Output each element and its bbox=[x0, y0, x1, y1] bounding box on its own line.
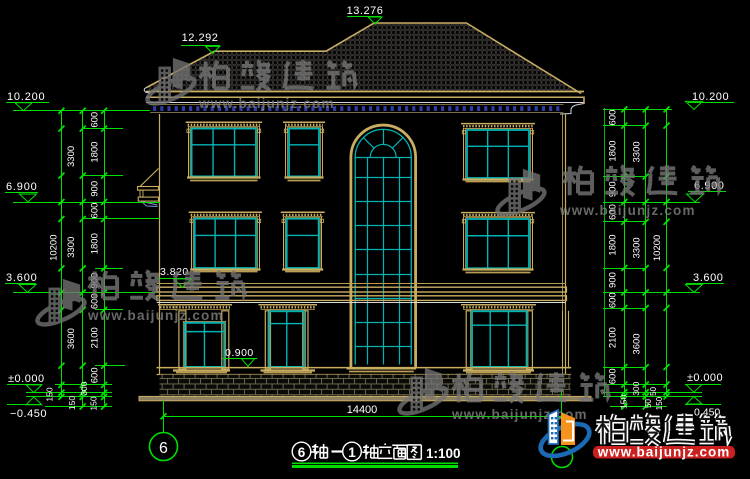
svg-text:150: 150 bbox=[618, 395, 628, 409]
svg-text:12.292: 12.292 bbox=[182, 32, 219, 44]
svg-text:600: 600 bbox=[608, 368, 619, 384]
svg-text:3300: 3300 bbox=[66, 237, 77, 258]
svg-text:600: 600 bbox=[608, 292, 619, 308]
svg-text:150: 150 bbox=[67, 396, 77, 410]
svg-text:600: 600 bbox=[90, 112, 101, 128]
svg-text:2100: 2100 bbox=[608, 327, 619, 348]
svg-text:3.600: 3.600 bbox=[693, 272, 724, 284]
svg-text:600: 600 bbox=[608, 110, 619, 126]
svg-text:www.baijunjz.com: www.baijunjz.com bbox=[87, 308, 224, 323]
svg-text:6: 6 bbox=[298, 445, 306, 460]
svg-text:150: 150 bbox=[89, 396, 99, 410]
svg-text:1: 1 bbox=[348, 445, 356, 460]
svg-text:900: 900 bbox=[90, 181, 101, 197]
svg-text:www.baijunjz.com: www.baijunjz.com bbox=[597, 445, 731, 460]
svg-text:10200: 10200 bbox=[49, 234, 60, 260]
svg-text:3300: 3300 bbox=[632, 237, 643, 258]
svg-text:3600: 3600 bbox=[66, 328, 77, 349]
svg-text:13.276: 13.276 bbox=[347, 5, 384, 17]
svg-text:6.900: 6.900 bbox=[6, 181, 38, 193]
svg-text:10.200: 10.200 bbox=[7, 91, 45, 103]
svg-text:1800: 1800 bbox=[90, 142, 101, 163]
svg-text:600: 600 bbox=[90, 203, 101, 219]
svg-text:0.900: 0.900 bbox=[225, 347, 254, 359]
svg-text:50: 50 bbox=[649, 386, 658, 395]
svg-text:6: 6 bbox=[159, 440, 168, 457]
svg-text:±0.000: ±0.000 bbox=[687, 372, 723, 384]
svg-text:150: 150 bbox=[655, 396, 664, 410]
svg-text:300: 300 bbox=[631, 381, 641, 395]
svg-text:1800: 1800 bbox=[608, 140, 619, 161]
svg-text:www.baijunjz.com: www.baijunjz.com bbox=[559, 203, 696, 218]
svg-text:150: 150 bbox=[44, 387, 54, 401]
svg-text:3300: 3300 bbox=[632, 141, 643, 162]
svg-text:3600: 3600 bbox=[632, 333, 643, 354]
svg-text:900: 900 bbox=[608, 181, 619, 197]
svg-text:10200: 10200 bbox=[652, 235, 663, 261]
svg-text:1:100: 1:100 bbox=[426, 446, 461, 461]
svg-text:3.600: 3.600 bbox=[6, 272, 38, 284]
svg-text:www.baijunjz.com: www.baijunjz.com bbox=[198, 96, 335, 111]
svg-text:600: 600 bbox=[90, 367, 101, 383]
svg-text:50: 50 bbox=[644, 399, 653, 408]
svg-text:1800: 1800 bbox=[608, 234, 619, 255]
svg-text:14400: 14400 bbox=[347, 404, 378, 416]
svg-text:3300: 3300 bbox=[66, 146, 77, 167]
svg-text:900: 900 bbox=[608, 272, 619, 288]
svg-text:±0.000: ±0.000 bbox=[8, 373, 45, 385]
svg-text:−0.450: −0.450 bbox=[10, 408, 47, 420]
svg-text:1800: 1800 bbox=[90, 233, 101, 254]
svg-text:2100: 2100 bbox=[90, 327, 101, 348]
svg-text:300: 300 bbox=[79, 381, 89, 395]
